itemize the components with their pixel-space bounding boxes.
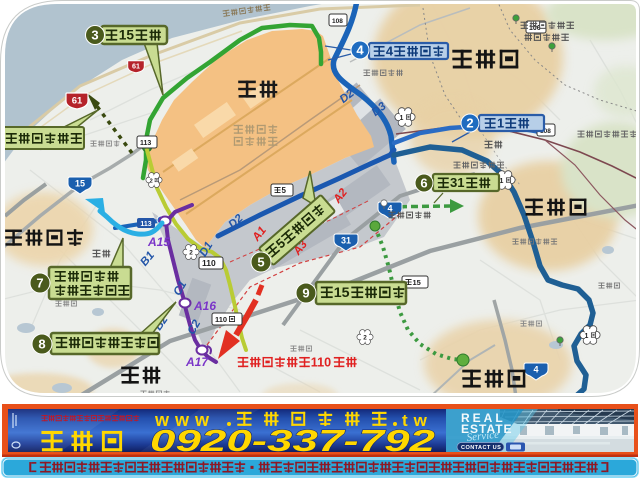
svg-text:110: 110 [215, 315, 227, 324]
svg-text:A16: A16 [193, 299, 216, 313]
svg-text:1: 1 [497, 116, 504, 131]
svg-text:31: 31 [341, 236, 351, 246]
svg-text:110: 110 [202, 258, 216, 268]
svg-text:2: 2 [150, 178, 153, 184]
svg-text:113: 113 [140, 221, 151, 228]
svg-text:15: 15 [413, 278, 421, 287]
svg-text:61: 61 [72, 96, 83, 107]
svg-text:31: 31 [450, 175, 465, 190]
svg-text:A17: A17 [185, 355, 209, 369]
svg-text:0920-337-792: 0920-337-792 [150, 423, 435, 458]
svg-text:4: 4 [386, 44, 394, 59]
svg-text:4: 4 [356, 43, 364, 58]
svg-text:9: 9 [302, 286, 309, 301]
svg-text:4: 4 [533, 365, 538, 375]
svg-text:1: 1 [400, 115, 404, 122]
svg-text:15: 15 [334, 285, 350, 301]
svg-text:2: 2 [466, 116, 473, 131]
svg-text:15: 15 [119, 28, 135, 43]
svg-text:1: 1 [585, 333, 589, 340]
svg-text:1: 1 [500, 178, 504, 185]
svg-text:15: 15 [75, 179, 85, 189]
svg-text:2: 2 [189, 249, 193, 256]
svg-text:7: 7 [36, 276, 43, 291]
svg-text:A15: A15 [147, 235, 170, 249]
svg-text:3: 3 [91, 28, 98, 43]
svg-text:108: 108 [332, 18, 343, 25]
svg-text:8: 8 [38, 337, 45, 352]
svg-text:CONTACT US: CONTACT US [461, 445, 501, 451]
svg-text:6: 6 [420, 176, 427, 191]
svg-text:5: 5 [257, 255, 264, 270]
svg-text:110: 110 [311, 355, 331, 369]
svg-text:5: 5 [282, 186, 287, 195]
svg-text:113: 113 [140, 140, 151, 147]
svg-text:61: 61 [132, 63, 140, 71]
svg-text:2: 2 [363, 334, 367, 341]
